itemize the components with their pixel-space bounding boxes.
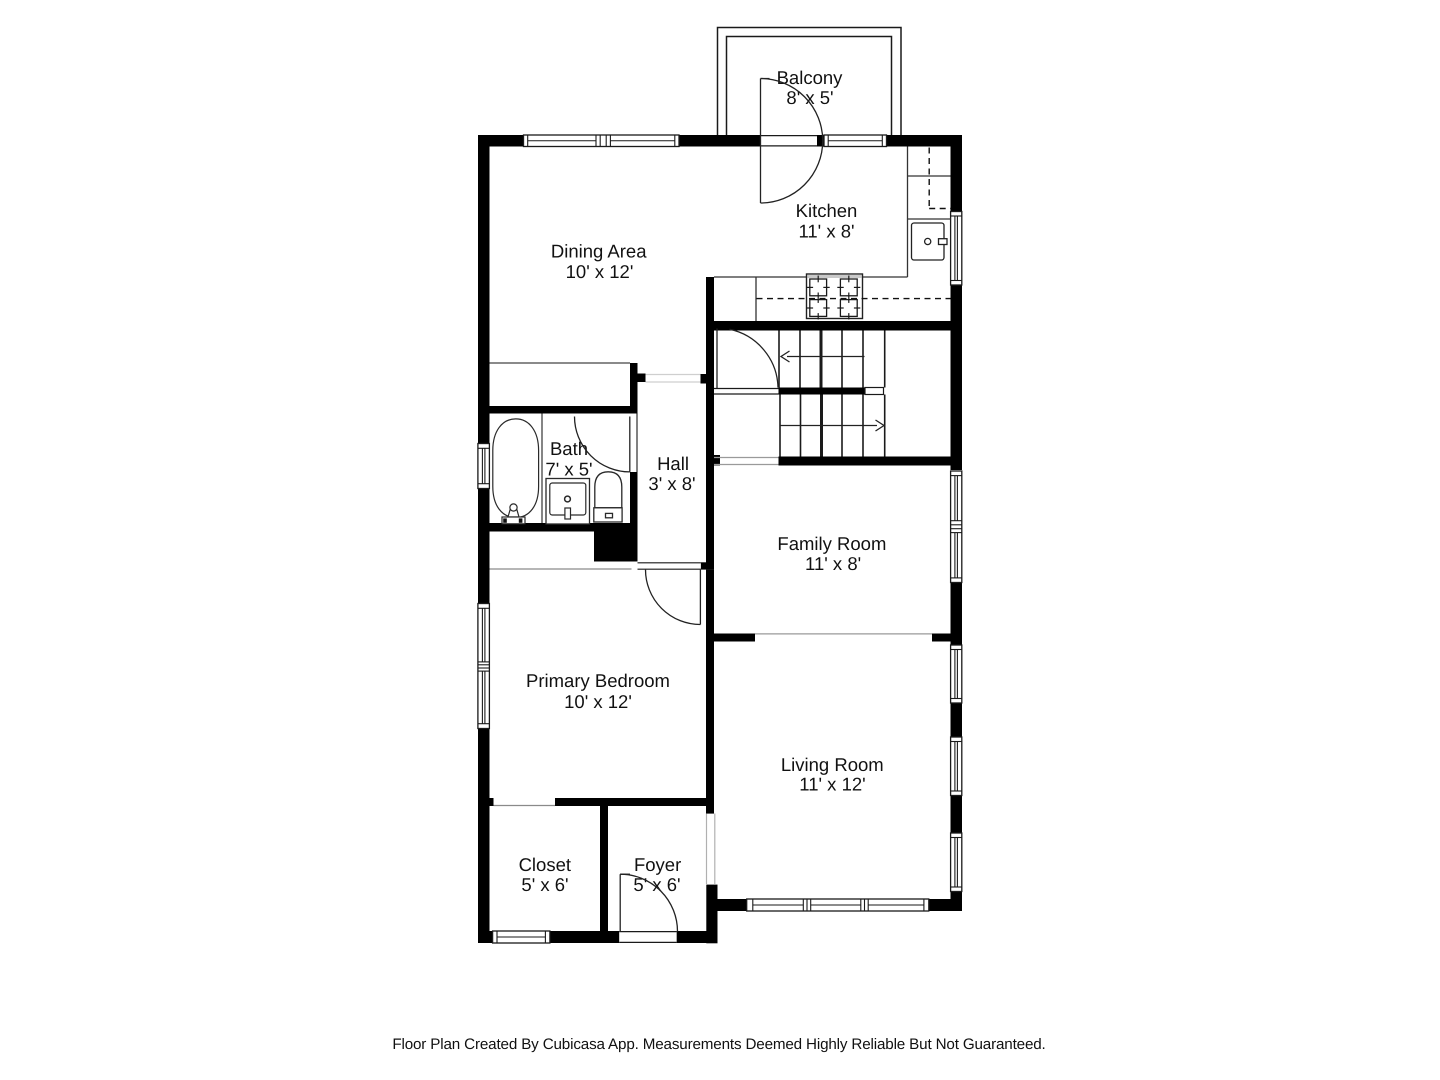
svg-text:Family Room: Family Room <box>777 533 886 554</box>
svg-text:Floor Plan Created By Cubicasa: Floor Plan Created By Cubicasa App. Meas… <box>392 1036 1045 1053</box>
svg-text:Foyer: Foyer <box>634 854 681 875</box>
svg-text:Primary Bedroom: Primary Bedroom <box>526 670 670 691</box>
svg-text:10' x 12': 10' x 12' <box>564 691 632 712</box>
svg-text:3' x 8': 3' x 8' <box>648 473 695 494</box>
svg-text:10' x 12': 10' x 12' <box>566 261 634 282</box>
svg-text:Living Room: Living Room <box>781 754 884 775</box>
svg-text:5' x 6': 5' x 6' <box>521 874 568 895</box>
svg-text:Dining Area: Dining Area <box>551 241 647 262</box>
svg-text:Bath: Bath <box>550 438 588 459</box>
svg-text:Closet: Closet <box>519 854 571 875</box>
svg-text:11' x 8': 11' x 8' <box>805 553 861 574</box>
svg-text:Hall: Hall <box>657 453 689 474</box>
svg-text:11' x 8': 11' x 8' <box>798 221 854 242</box>
svg-text:Kitchen: Kitchen <box>796 200 858 221</box>
svg-text:7' x 5': 7' x 5' <box>545 459 592 480</box>
svg-text:8' x 5': 8' x 5' <box>786 87 833 108</box>
svg-text:Balcony: Balcony <box>777 67 844 88</box>
svg-text:11' x 12': 11' x 12' <box>799 774 865 795</box>
